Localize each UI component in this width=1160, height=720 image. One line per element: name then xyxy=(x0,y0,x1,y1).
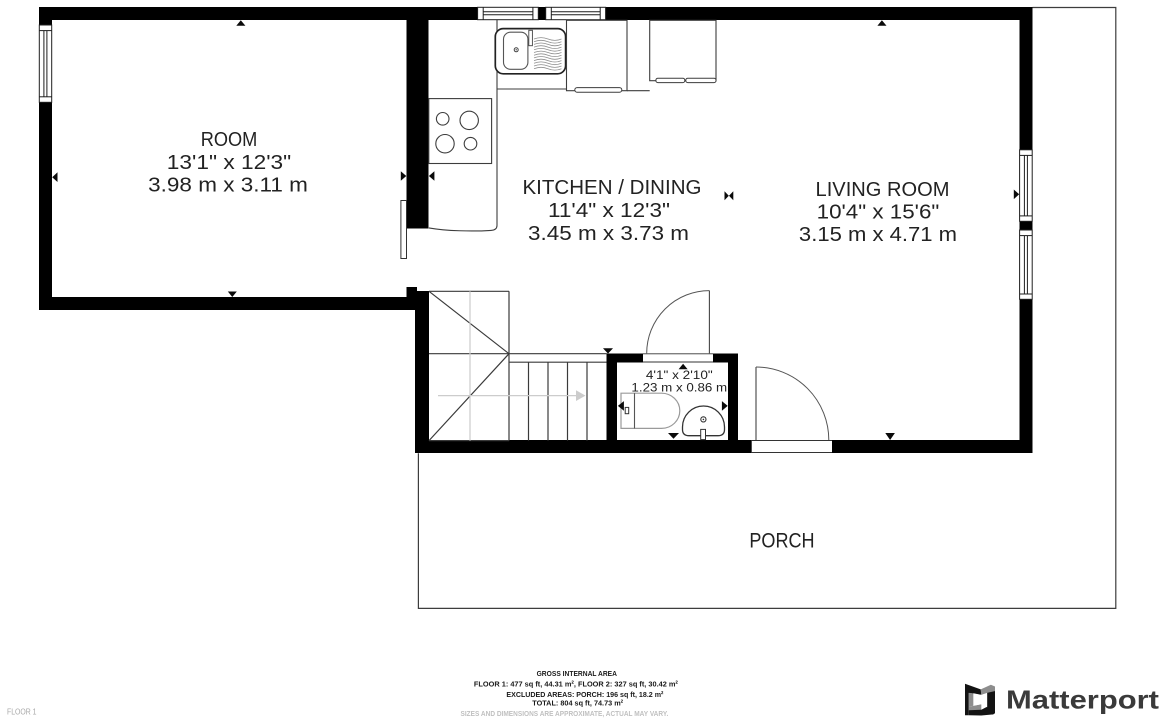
svg-text:KITCHEN / DINING: KITCHEN / DINING xyxy=(523,176,702,199)
svg-text:13'1" x 12'3": 13'1" x 12'3" xyxy=(167,151,291,174)
svg-text:1.23 m x 0.86 m: 1.23 m x 0.86 m xyxy=(631,383,727,395)
svg-text:10'4" x 15'6": 10'4" x 15'6" xyxy=(817,201,940,224)
svg-text:4'1" x 2'10": 4'1" x 2'10" xyxy=(646,370,713,382)
svg-text:FLOOR 1: FLOOR 1 xyxy=(7,708,37,717)
svg-text:LIVING ROOM: LIVING ROOM xyxy=(816,178,950,201)
svg-text:SIZES AND DIMENSIONS ARE APPRO: SIZES AND DIMENSIONS ARE APPROXIMATE, AC… xyxy=(461,709,669,718)
svg-text:3.45 m x 3.73 m: 3.45 m x 3.73 m xyxy=(528,222,689,245)
svg-text:11'4" x 12'3": 11'4" x 12'3" xyxy=(548,199,670,222)
svg-text:TOTAL: 804 sq ft, 74.73 m²: TOTAL: 804 sq ft, 74.73 m² xyxy=(532,699,623,708)
svg-text:3.15 m x 4.71 m: 3.15 m x 4.71 m xyxy=(799,223,957,246)
svg-text:3.98 m x 3.11 m: 3.98 m x 3.11 m xyxy=(148,174,308,197)
svg-text:Matterport: Matterport xyxy=(1006,685,1159,715)
svg-text:EXCLUDED AREAS: PORCH: 196 sq: EXCLUDED AREAS: PORCH: 196 sq ft, 18.2 m… xyxy=(506,690,663,699)
svg-text:PORCH: PORCH xyxy=(749,529,814,553)
svg-text:FLOOR 1: 477 sq ft, 44.31 m²,: FLOOR 1: 477 sq ft, 44.31 m², FLOOR 2: 3… xyxy=(474,680,678,689)
svg-text:GROSS INTERNAL AREA: GROSS INTERNAL AREA xyxy=(537,669,618,678)
svg-text:ROOM: ROOM xyxy=(201,128,258,151)
